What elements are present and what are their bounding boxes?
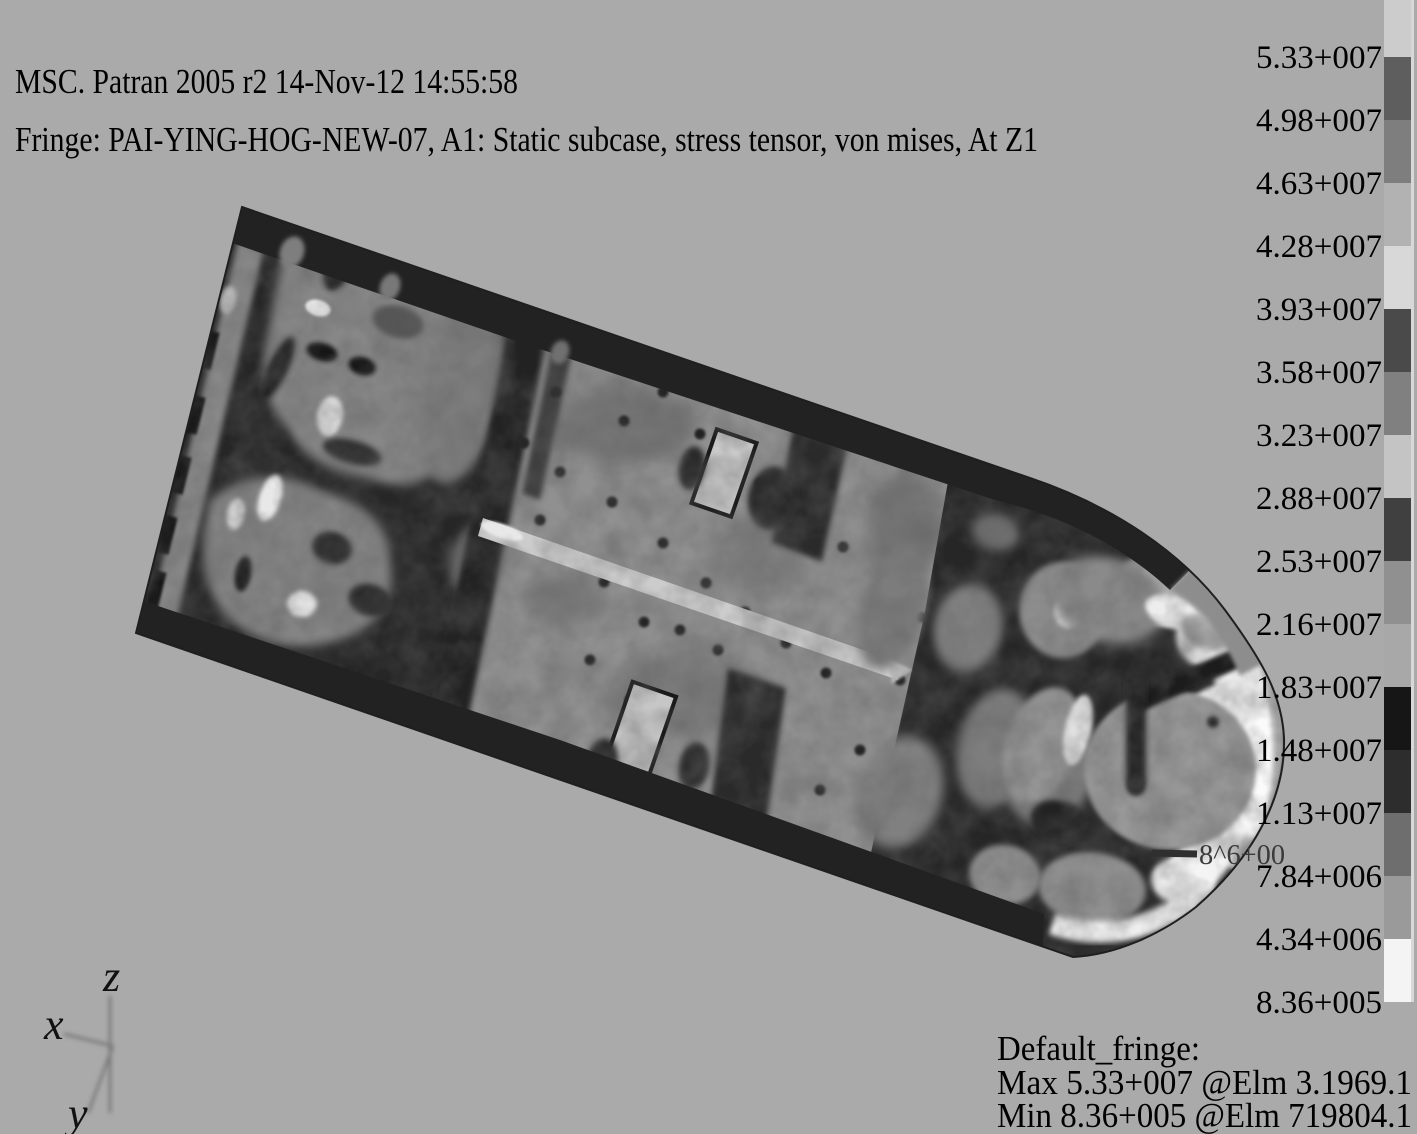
svg-text:MSC. Patran 2005 r2 14-Nov-12: MSC. Patran 2005 r2 14-Nov-12 14:55:58 xyxy=(15,62,518,101)
svg-text:5.33+007: 5.33+007 xyxy=(1256,40,1382,76)
svg-text:7.84+006: 7.84+006 xyxy=(1256,859,1382,895)
svg-text:4.63+007: 4.63+007 xyxy=(1256,166,1382,202)
svg-text:8.36+005: 8.36+005 xyxy=(1256,985,1382,1021)
svg-text:2.53+007: 2.53+007 xyxy=(1256,544,1382,580)
svg-text:x: x xyxy=(43,1000,64,1049)
svg-text:1.13+007: 1.13+007 xyxy=(1256,796,1382,832)
svg-text:3.58+007: 3.58+007 xyxy=(1256,355,1382,391)
svg-text:3.23+007: 3.23+007 xyxy=(1256,418,1382,454)
svg-text:Min 8.36+005 @Elm 719804.1: Min 8.36+005 @Elm 719804.1 xyxy=(997,1096,1412,1134)
svg-text:2.88+007: 2.88+007 xyxy=(1256,481,1382,517)
svg-text:1.48+007: 1.48+007 xyxy=(1256,733,1382,769)
svg-text:3.93+007: 3.93+007 xyxy=(1256,292,1382,328)
svg-text:4.28+007: 4.28+007 xyxy=(1256,229,1382,265)
svg-text:4.98+007: 4.98+007 xyxy=(1256,103,1382,139)
svg-text:z: z xyxy=(102,952,120,1001)
svg-text:y: y xyxy=(64,1089,88,1134)
svg-text:2.16+007: 2.16+007 xyxy=(1256,607,1382,643)
svg-text:Fringe: PAI-YING-HOG-NEW-07, A: Fringe: PAI-YING-HOG-NEW-07, A1: Static … xyxy=(15,120,1038,159)
svg-text:4.34+006: 4.34+006 xyxy=(1256,922,1382,958)
svg-text:1.83+007: 1.83+007 xyxy=(1256,670,1382,706)
